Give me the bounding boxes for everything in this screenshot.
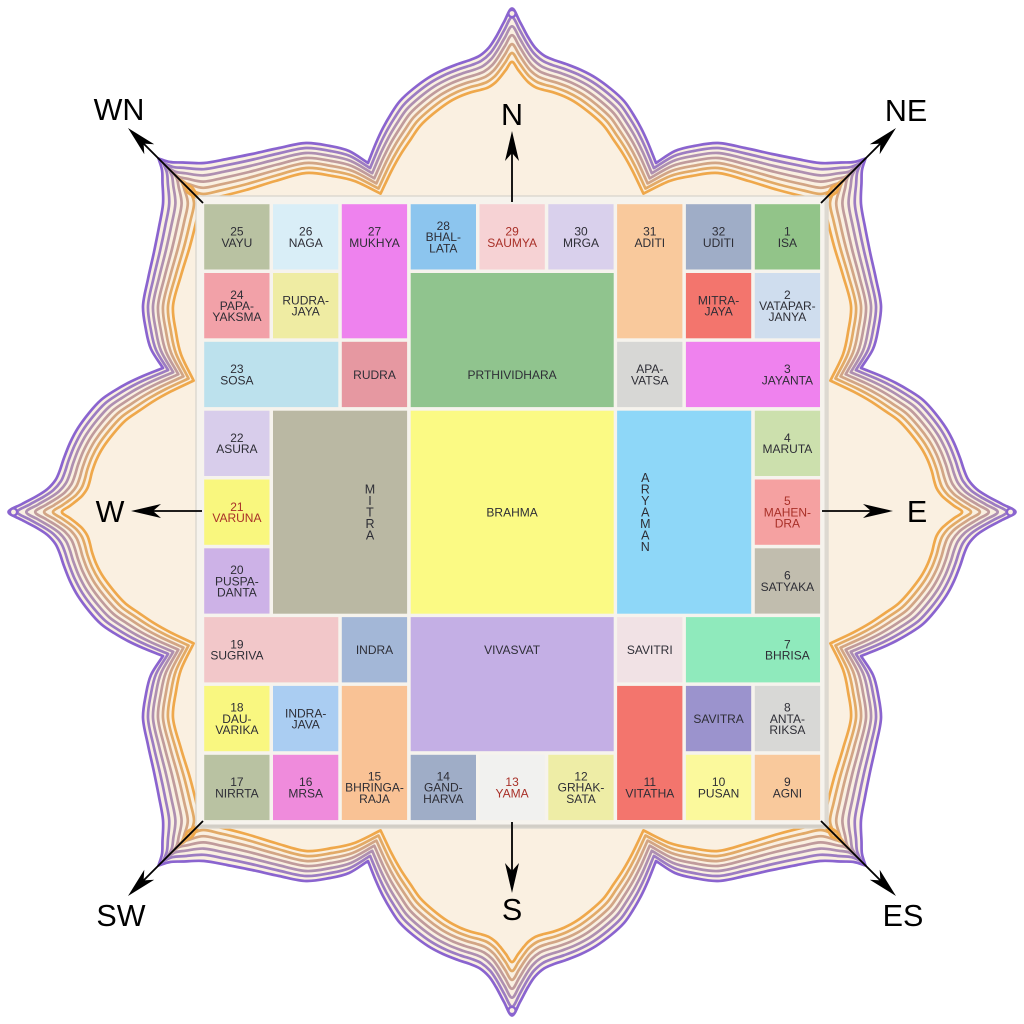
svg-text:AGNI: AGNI (773, 786, 802, 800)
svg-text:MARUTA: MARUTA (763, 442, 813, 456)
svg-text:MRGA: MRGA (563, 236, 599, 250)
svg-text:PRTHIVIDHARA: PRTHIVIDHARA (468, 368, 557, 382)
svg-text:WN: WN (94, 93, 145, 127)
svg-text:JAYA: JAYA (292, 305, 320, 319)
svg-text:YAKSMA: YAKSMA (212, 310, 261, 324)
svg-text:DANTA: DANTA (217, 586, 257, 600)
svg-text:SUGRIVA: SUGRIVA (210, 649, 263, 663)
svg-text:JANYA: JANYA (769, 310, 807, 324)
svg-text:MRSA: MRSA (288, 786, 323, 800)
svg-text:A: A (366, 528, 375, 542)
svg-text:JAYANTA: JAYANTA (762, 373, 813, 387)
svg-text:VARUNA: VARUNA (212, 511, 261, 525)
svg-text:N: N (641, 540, 650, 554)
svg-text:DRA: DRA (775, 517, 800, 531)
svg-text:ES: ES (883, 899, 924, 933)
svg-text:SAVITRI: SAVITRI (627, 643, 673, 657)
svg-text:VIVASVAT: VIVASVAT (484, 643, 541, 657)
svg-text:LATA: LATA (429, 241, 457, 255)
svg-text:RUDRA: RUDRA (353, 368, 396, 382)
svg-text:ASURA: ASURA (216, 442, 257, 456)
svg-text:NAGA: NAGA (289, 236, 323, 250)
svg-text:SOSA: SOSA (220, 373, 253, 387)
svg-text:N: N (501, 98, 523, 132)
svg-text:E: E (907, 495, 927, 529)
svg-text:ADITI: ADITI (634, 236, 665, 250)
svg-text:RIKSA: RIKSA (769, 723, 805, 737)
svg-text:SATYAKA: SATYAKA (761, 580, 815, 594)
svg-text:VARIKA: VARIKA (215, 723, 258, 737)
svg-text:YAMA: YAMA (496, 786, 529, 800)
svg-text:W: W (96, 495, 125, 529)
svg-text:SAUMYA: SAUMYA (487, 236, 537, 250)
svg-text:INDRA: INDRA (356, 643, 393, 657)
svg-text:UDITI: UDITI (703, 236, 734, 250)
svg-text:RAJA: RAJA (359, 792, 390, 806)
svg-text:NIRRTA: NIRRTA (215, 786, 259, 800)
svg-text:JAVA: JAVA (292, 718, 320, 732)
svg-text:S: S (502, 893, 522, 927)
svg-text:BHRISA: BHRISA (765, 649, 810, 663)
svg-text:VATSA: VATSA (631, 373, 669, 387)
svg-text:PUSAN: PUSAN (698, 786, 739, 800)
svg-text:VAYU: VAYU (221, 236, 252, 250)
svg-text:HARVA: HARVA (423, 792, 463, 806)
svg-text:SAVITRA: SAVITRA (693, 712, 743, 726)
svg-text:VITATHA: VITATHA (625, 786, 674, 800)
svg-text:JAYA: JAYA (704, 305, 732, 319)
svg-text:NE: NE (885, 94, 927, 128)
svg-text:SW: SW (96, 899, 145, 933)
svg-text:BRAHMA: BRAHMA (486, 505, 537, 519)
svg-text:ISA: ISA (778, 236, 797, 250)
svg-text:MUKHYA: MUKHYA (349, 236, 399, 250)
svg-text:SATA: SATA (566, 792, 596, 806)
